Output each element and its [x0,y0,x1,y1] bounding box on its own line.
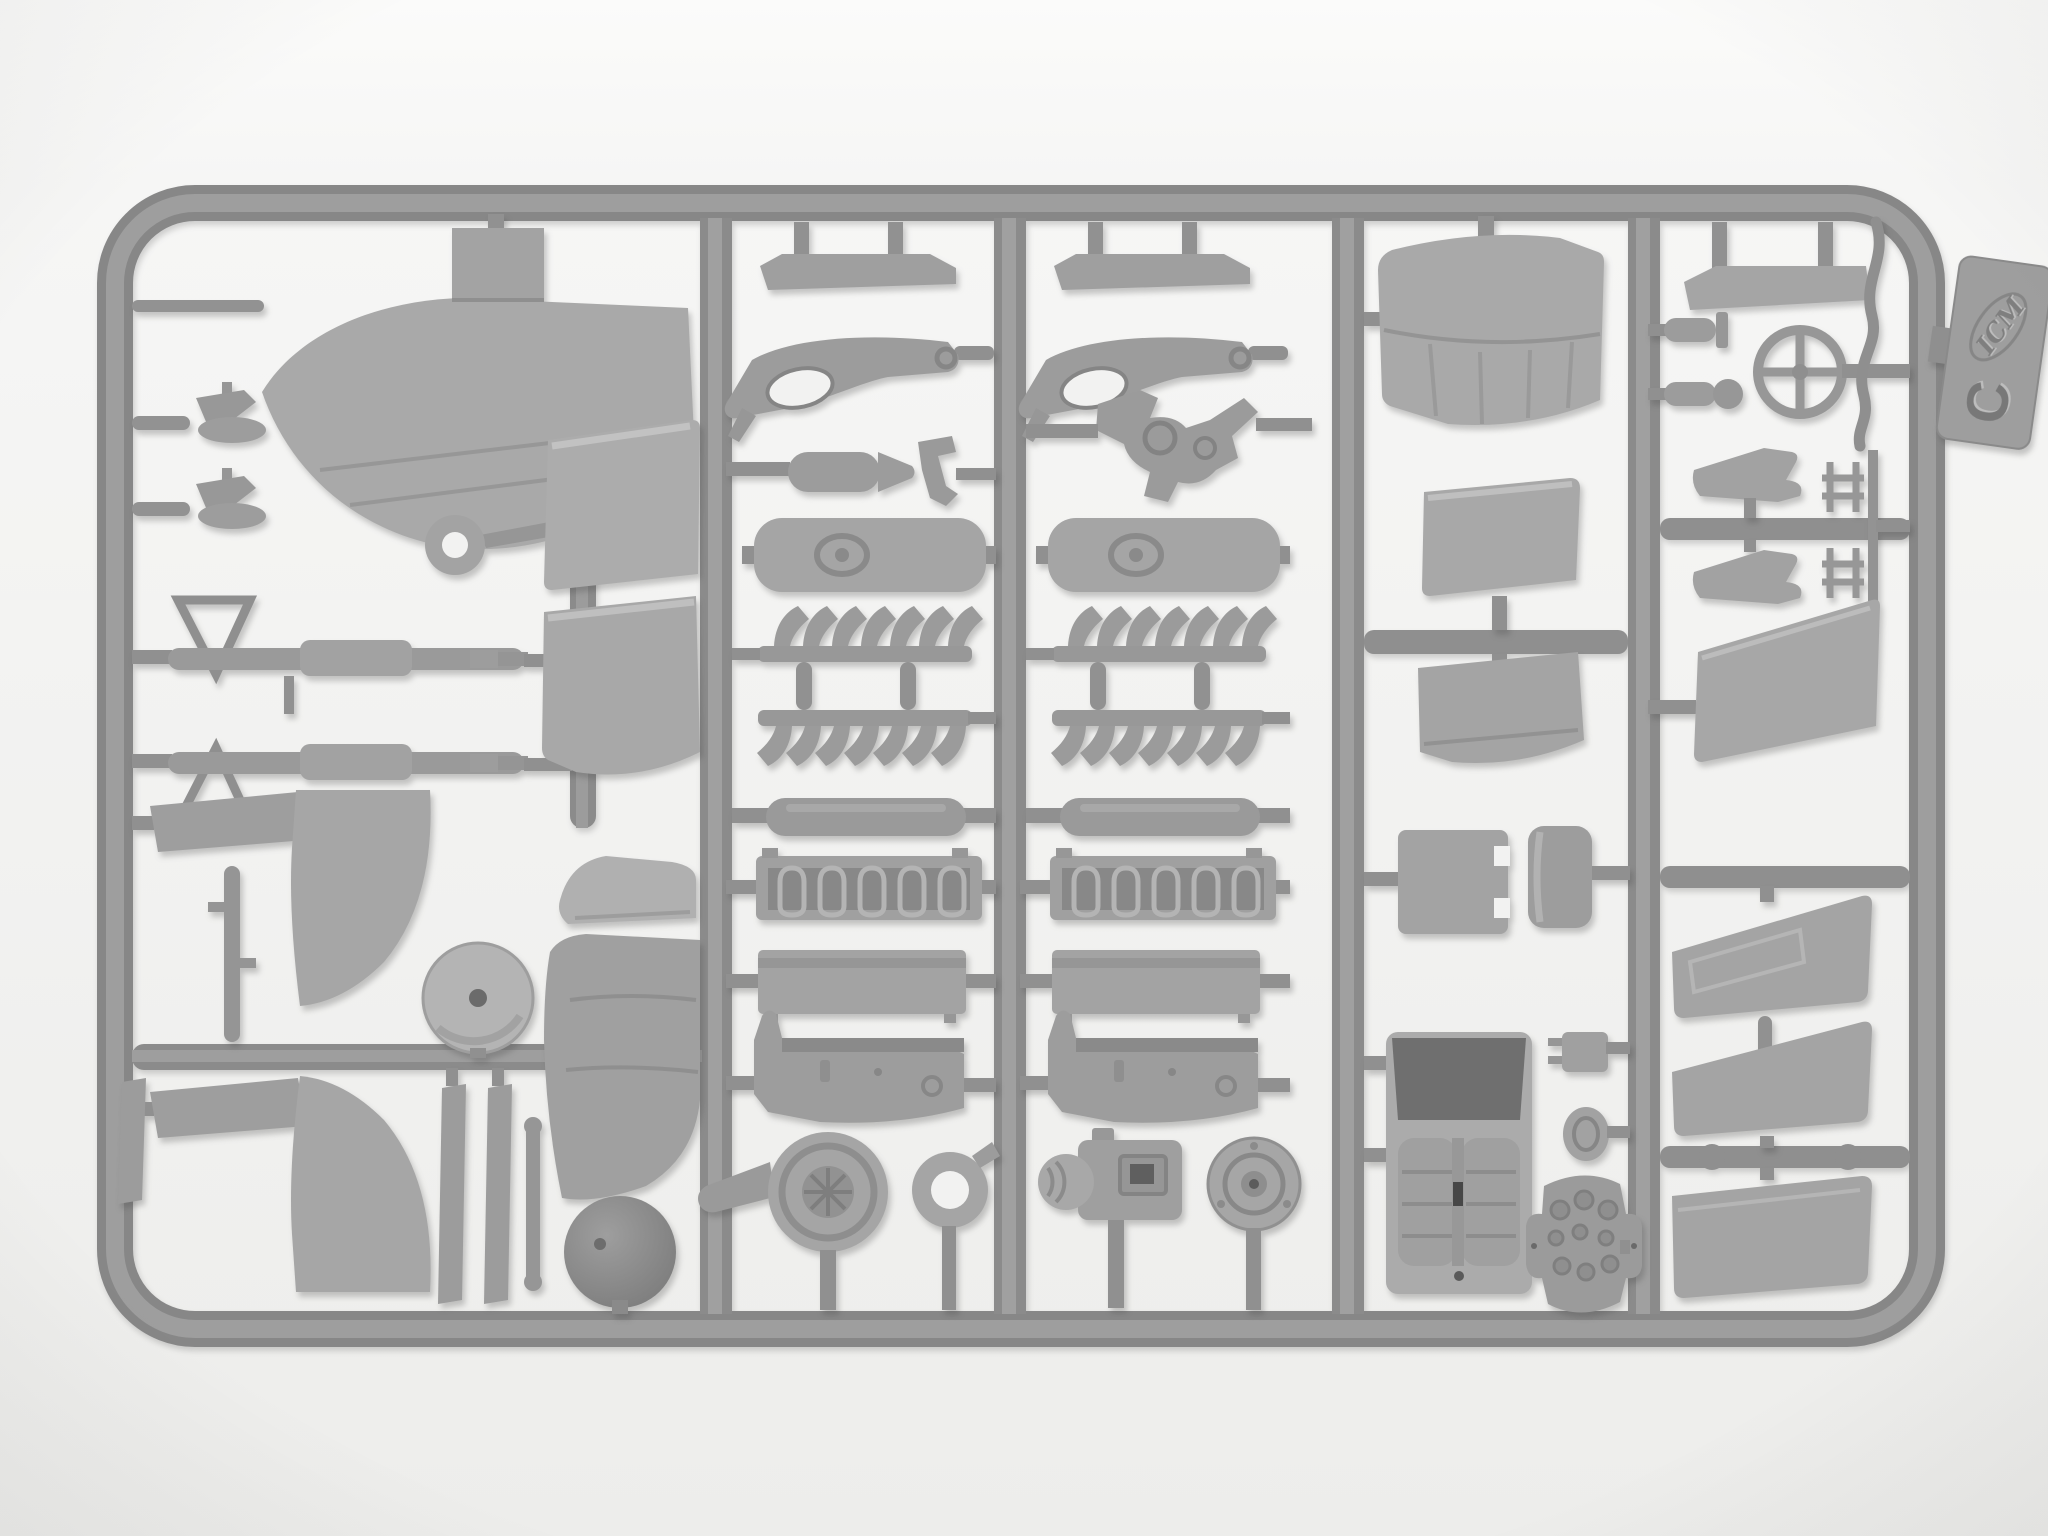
photo-stage: ICM ICM C C [0,0,2048,1536]
photo-vignette [0,0,2048,1536]
sprue-photo: ICM ICM C C [0,0,2048,1536]
